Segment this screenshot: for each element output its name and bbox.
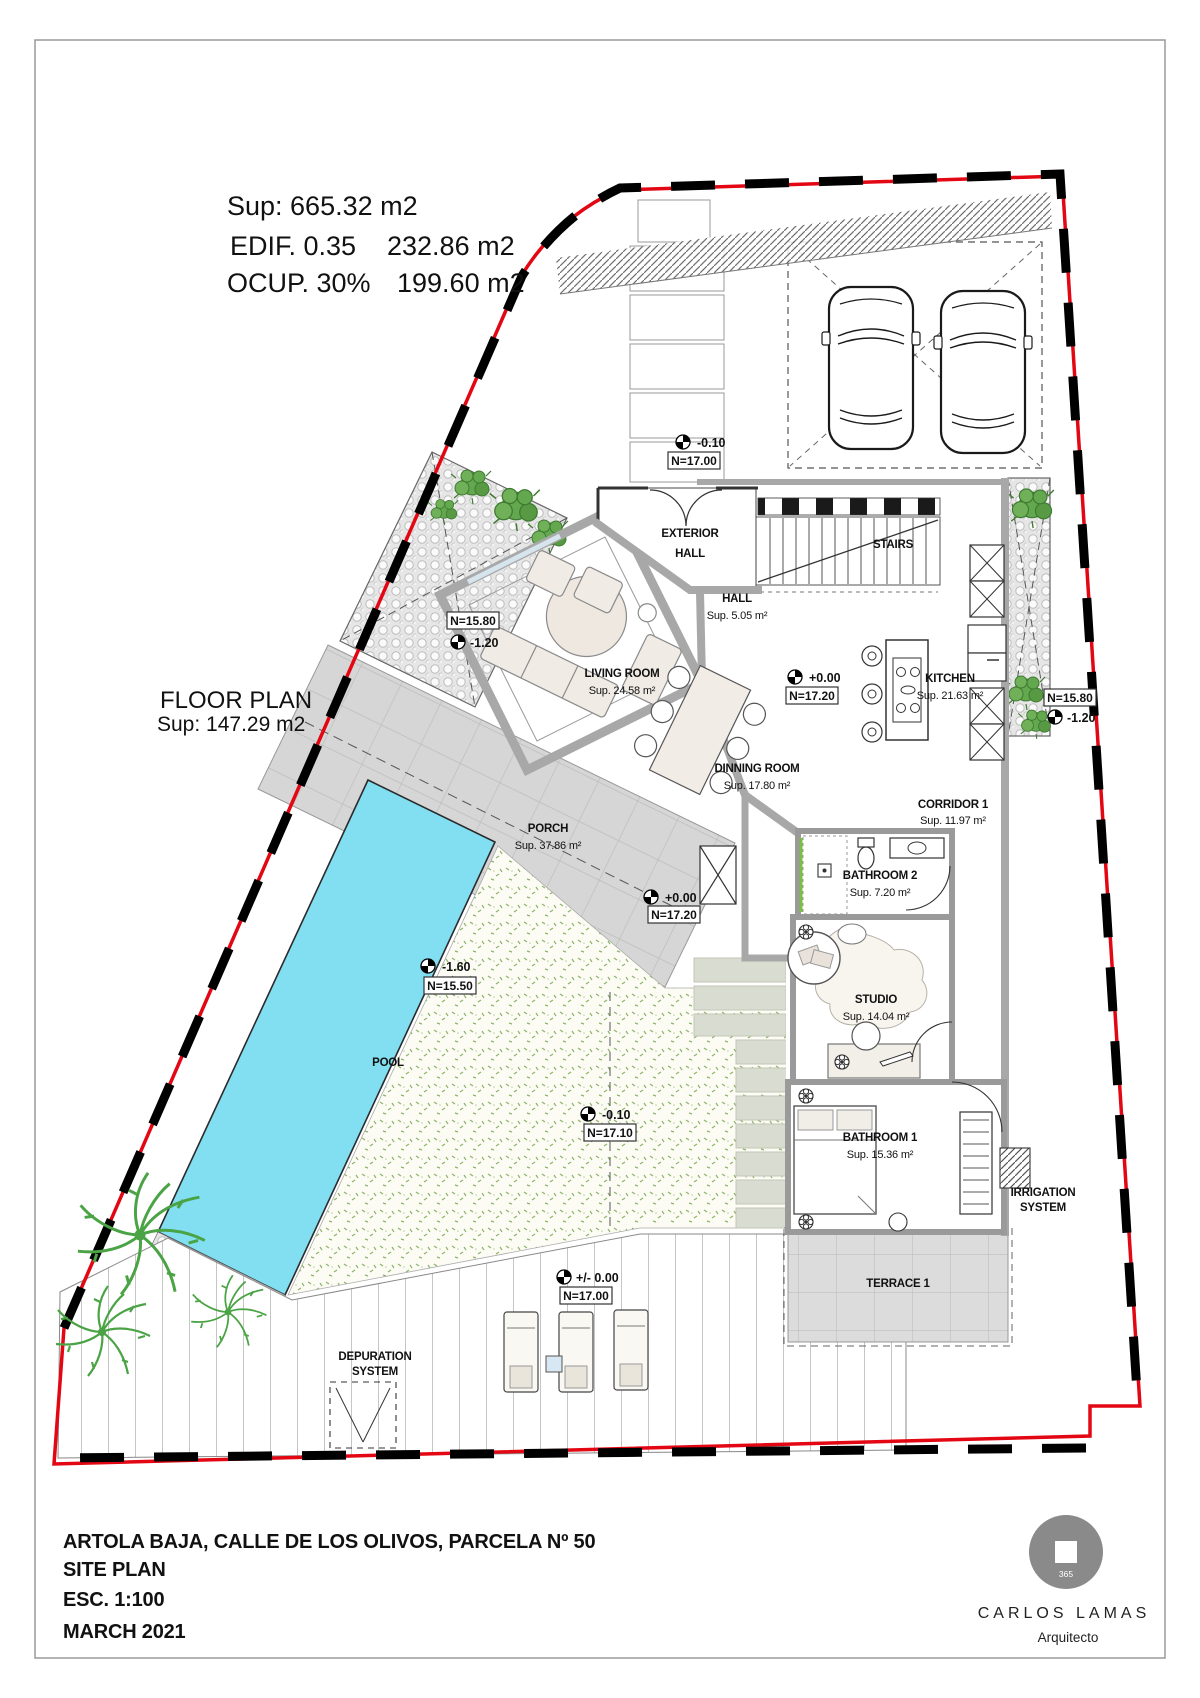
vent-icon	[799, 1215, 813, 1229]
level-value: -1.20	[1067, 711, 1096, 725]
level-n: N=15.50	[427, 979, 473, 993]
logo-name: CARLOS LAMAS	[978, 1605, 1150, 1622]
level-value: +/- 0.00	[576, 1271, 619, 1285]
level-marker-porch: +0.00 N=17.20	[644, 890, 700, 923]
shaft	[700, 846, 736, 904]
level-marker-pool: -1.60 N=15.50	[421, 959, 476, 994]
kitchen-stools	[862, 646, 882, 742]
level-marker-icon	[788, 670, 802, 684]
floor-plan-area: Sup: 147.29 m2	[157, 713, 305, 736]
dinning-room-area: Sup. 17.80 m²	[724, 780, 791, 792]
sun-loungers	[504, 1310, 648, 1392]
site-plan-drawing: -0.10 N=17.00 +0.00 N=17.20 N=15.80 -1.2…	[0, 0, 1200, 1698]
level-marker-planter-right: N=15.80 -1.20	[1044, 689, 1096, 725]
vent-icon	[835, 1055, 849, 1069]
level-marker-deck: +/- 0.00 N=17.00	[557, 1270, 619, 1304]
kitchen-area: Sup. 21.63 m²	[917, 690, 984, 702]
logo-role: Arquitecto	[1038, 1630, 1099, 1645]
level-value: +0.00	[809, 671, 841, 685]
bathroom2-area: Sup. 7.20 m²	[850, 887, 911, 899]
level-n: N=15.80	[450, 614, 496, 628]
wardrobe	[960, 1112, 992, 1214]
plan-date: MARCH 2021	[63, 1621, 186, 1643]
level-value: +0.00	[665, 891, 697, 905]
irrigation-label-2: SYSTEM	[1020, 1202, 1066, 1214]
level-marker-kitchen: +0.00 N=17.20	[786, 670, 841, 704]
level-n: N=15.80	[1047, 691, 1093, 705]
level-marker-driveway: -0.10 N=17.00	[668, 435, 726, 469]
architect-logo: 365 CARLOS LAMAS Arquitecto	[978, 1515, 1150, 1645]
corridor-area: Sup. 11.97 m²	[920, 815, 986, 827]
summary-sup: Sup: 665.32 m2	[227, 191, 418, 221]
summary-edif-value: 232.86 m2	[387, 231, 515, 261]
plan-scale: ESC. 1:100	[63, 1589, 164, 1611]
logo-badge: 365	[1059, 1569, 1073, 1579]
plan-name: SITE PLAN	[63, 1559, 166, 1581]
level-marker-icon	[644, 890, 658, 904]
summary-ocup-label: OCUP. 30%	[227, 268, 371, 298]
living-room-label: LIVING ROOM	[584, 668, 659, 680]
level-n: N=17.20	[651, 908, 697, 922]
level-marker-icon	[421, 959, 435, 973]
sun-lounger-icon	[559, 1312, 593, 1392]
level-marker-icon	[676, 435, 690, 449]
studio-label: STUDIO	[855, 994, 898, 1006]
irrigation-label-1: IRRIGATION	[1011, 1187, 1076, 1199]
level-marker-icon	[1048, 710, 1062, 724]
terrace-label: TERRACE 1	[866, 1278, 930, 1290]
exterior-hall-label-1: EXTERIOR	[661, 528, 719, 540]
project-address: ARTOLA BAJA, CALLE DE LOS OLIVOS, PARCEL…	[63, 1531, 595, 1553]
car-icon	[822, 287, 920, 449]
logo-square-icon	[1055, 1541, 1077, 1563]
level-marker-icon	[557, 1270, 571, 1284]
title-block: ARTOLA BAJA, CALLE DE LOS OLIVOS, PARCEL…	[63, 1531, 595, 1643]
deck	[58, 1234, 906, 1458]
level-marker-icon	[451, 635, 465, 649]
pool-label: POOL	[372, 1057, 404, 1069]
side-table	[546, 1356, 562, 1372]
level-marker-icon	[581, 1107, 595, 1121]
stairs-label: STAIRS	[873, 539, 914, 551]
boundary-hatch-strip	[556, 192, 1052, 294]
summary-ocup-value: 199.60 m2	[397, 268, 525, 298]
depuration-label-1: DEPURATION	[338, 1351, 411, 1363]
level-value: -0.10	[697, 436, 726, 450]
floor-plan-label: FLOOR PLAN Sup: 147.29 m2	[157, 687, 312, 736]
kitchen-label: KITCHEN	[925, 673, 975, 685]
bathroom2-label: BATHROOM 2	[843, 870, 917, 882]
hall-label: HALL	[722, 593, 752, 605]
level-value: -1.60	[442, 960, 471, 974]
sun-lounger-icon	[504, 1312, 538, 1392]
level-n: N=17.00	[563, 1289, 609, 1303]
corridor-label: CORRIDOR 1	[918, 799, 989, 811]
vent-icon	[799, 1089, 813, 1103]
depuration-label-2: SYSTEM	[352, 1366, 398, 1378]
irrigation-box	[1000, 1148, 1030, 1188]
carport	[788, 242, 1042, 468]
exterior-hall-label-2: HALL	[675, 548, 705, 560]
dinning-room-label: DINNING ROOM	[714, 763, 799, 775]
level-n: N=17.00	[671, 454, 717, 468]
site-plan-sheet: -0.10 N=17.00 +0.00 N=17.20 N=15.80 -1.2…	[0, 0, 1200, 1698]
car-icon	[934, 291, 1032, 453]
bathroom1-label: BATHROOM 1	[843, 1132, 918, 1144]
summary-edif-label: EDIF. 0.35	[230, 231, 356, 261]
area-summary: Sup: 665.32 m2 EDIF. 0.35 232.86 m2 OCUP…	[227, 191, 525, 298]
sun-lounger-icon	[614, 1310, 648, 1390]
level-n: N=17.20	[789, 689, 835, 703]
level-value: -0.10	[602, 1108, 631, 1122]
level-value: -1.20	[470, 636, 499, 650]
level-n: N=17.10	[587, 1126, 633, 1140]
porch-label: PORCH	[528, 823, 569, 835]
porch-area: Sup. 37.86 m²	[515, 840, 582, 852]
hall-area: Sup. 5.05 m²	[707, 610, 768, 622]
studio-area: Sup. 14.04 m²	[843, 1011, 910, 1023]
vent-icon	[799, 925, 813, 939]
living-room-area: Sup. 24.58 m²	[589, 685, 656, 697]
bathroom1-area: Sup. 15.36 m²	[847, 1149, 914, 1161]
level-marker-garden: -0.10 N=17.10	[581, 1107, 636, 1141]
floor-plan-title: FLOOR PLAN	[160, 687, 312, 714]
